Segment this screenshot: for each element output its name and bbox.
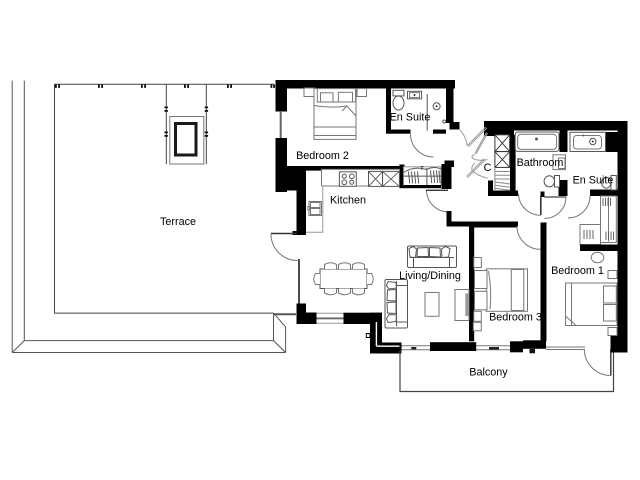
svg-text:Bedroom 3: Bedroom 3 <box>489 312 542 324</box>
svg-text:Bedroom 2: Bedroom 2 <box>296 150 349 162</box>
svg-text:C: C <box>484 162 492 174</box>
svg-text:Kitchen: Kitchen <box>330 195 366 207</box>
svg-text:Bathroom: Bathroom <box>517 157 564 169</box>
svg-text:Balcony: Balcony <box>469 367 508 379</box>
svg-text:Terrace: Terrace <box>160 216 196 228</box>
svg-text:Bedroom 1: Bedroom 1 <box>551 265 604 277</box>
svg-text:En Suite: En Suite <box>390 112 431 124</box>
svg-text:Living/Dining: Living/Dining <box>399 270 461 282</box>
svg-text:En Suite: En Suite <box>573 175 614 187</box>
